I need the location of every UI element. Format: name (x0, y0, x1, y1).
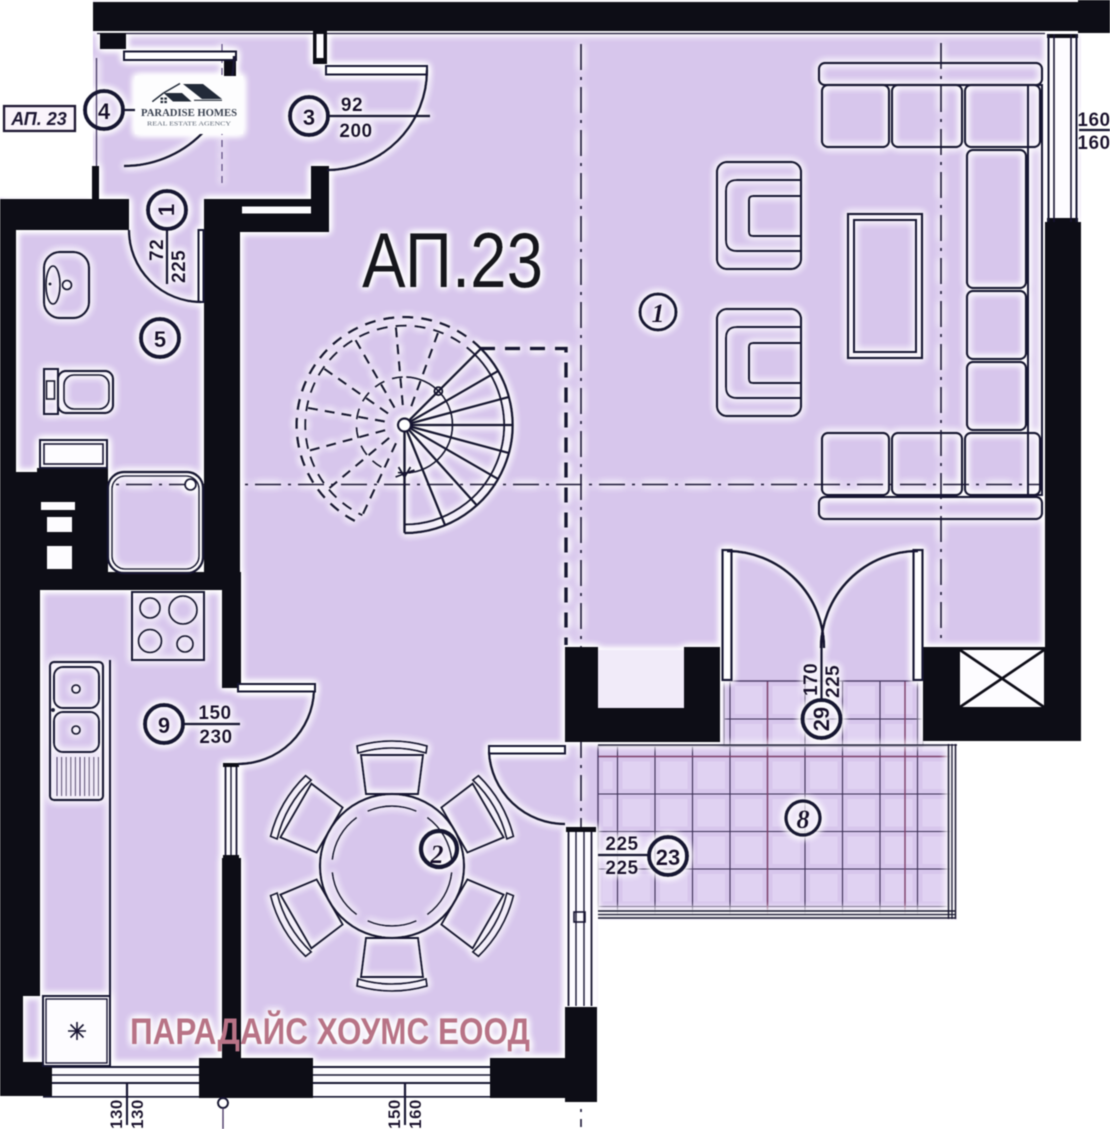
svg-text:225: 225 (169, 250, 190, 283)
svg-text:130: 130 (107, 1099, 126, 1129)
svg-text:8: 8 (797, 805, 810, 834)
svg-text:160: 160 (406, 1099, 425, 1129)
svg-text:92: 92 (341, 95, 363, 116)
svg-text:230: 230 (199, 727, 232, 748)
svg-text:225: 225 (823, 665, 844, 698)
svg-text:4: 4 (98, 99, 111, 124)
svg-text:150: 150 (385, 1099, 404, 1129)
svg-text:23: 23 (656, 845, 680, 870)
svg-text:9: 9 (158, 713, 170, 738)
svg-text:130: 130 (128, 1099, 147, 1129)
svg-text:1: 1 (652, 299, 665, 328)
svg-text:72: 72 (147, 239, 168, 261)
svg-text:REAL ESTATE AGENCY: REAL ESTATE AGENCY (147, 122, 232, 128)
svg-text:PARADISE HOMES: PARADISE HOMES (141, 108, 237, 119)
svg-text:200: 200 (339, 121, 372, 142)
svg-text:3: 3 (303, 105, 315, 130)
svg-text:1: 1 (154, 204, 179, 216)
svg-text:ПАРАДАЙС ХОУМС ЕООД: ПАРАДАЙС ХОУМС ЕООД (130, 1010, 530, 1052)
svg-text:150: 150 (198, 703, 231, 724)
svg-text:225: 225 (605, 834, 638, 855)
svg-text:АП.23: АП.23 (362, 216, 543, 304)
svg-text:170: 170 (801, 663, 822, 696)
svg-text:160: 160 (1077, 110, 1110, 131)
svg-text:5: 5 (154, 327, 166, 352)
svg-text:225: 225 (605, 858, 638, 879)
svg-text:160: 160 (1077, 133, 1110, 154)
svg-text:29: 29 (809, 707, 834, 731)
svg-text:АП. 23: АП. 23 (10, 109, 67, 129)
svg-text:2: 2 (430, 840, 444, 869)
